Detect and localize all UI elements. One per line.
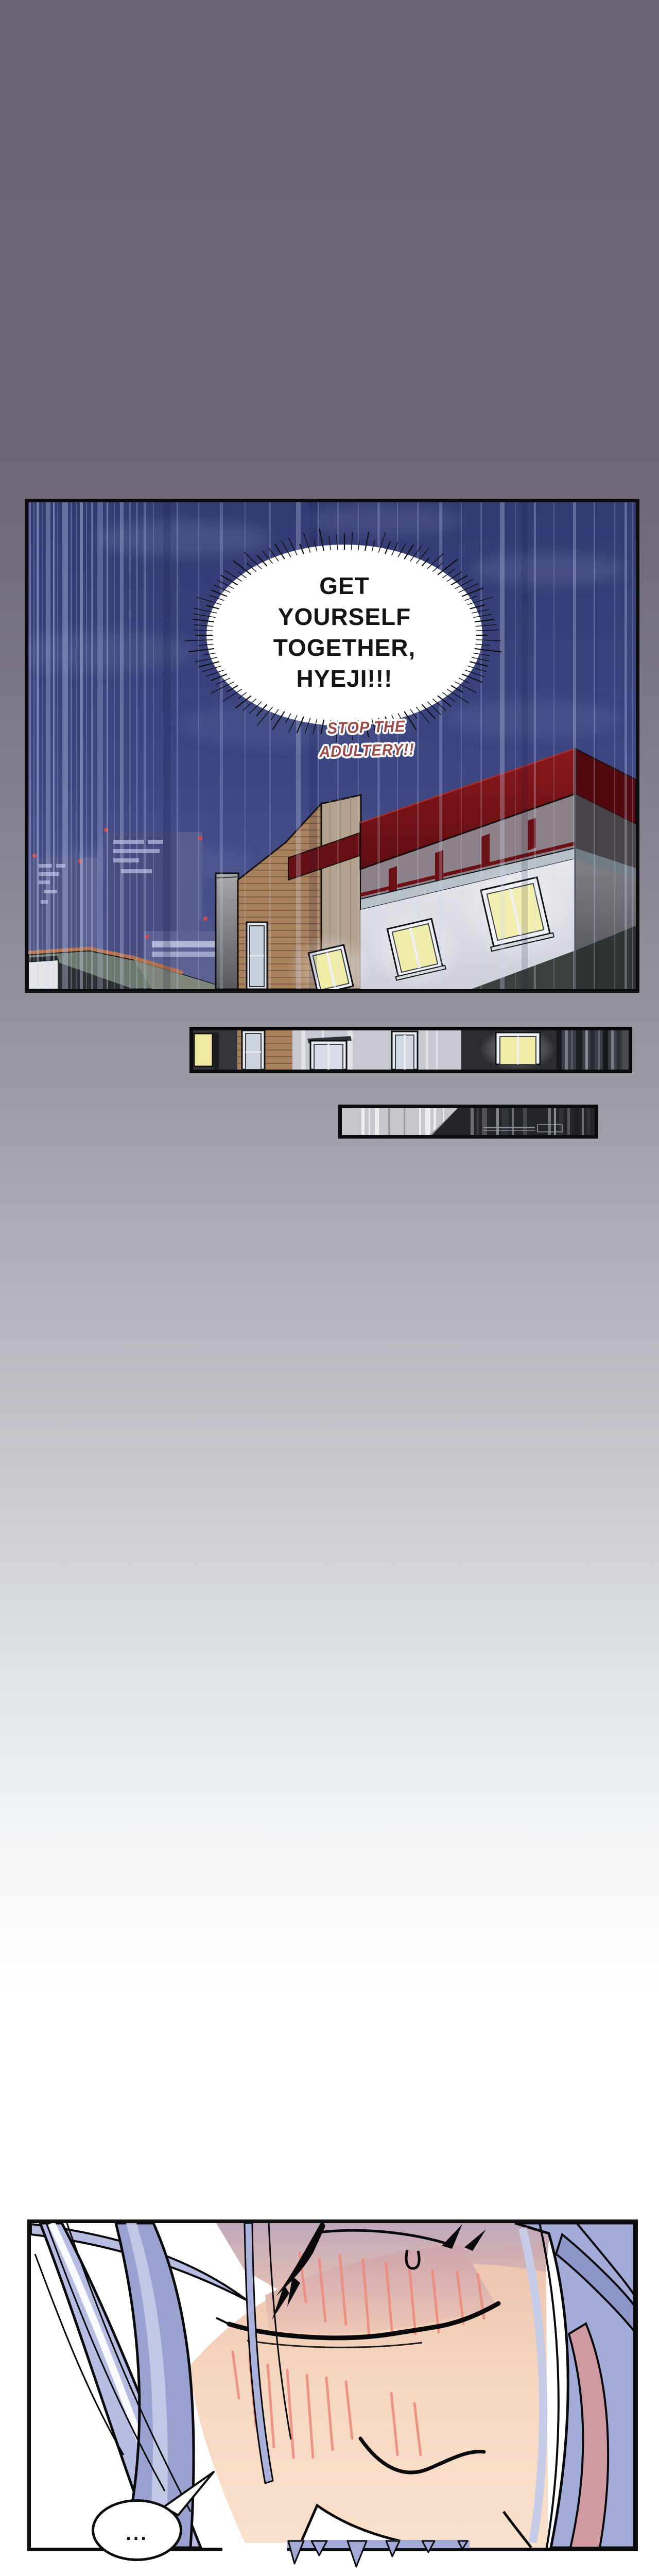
ellipsis-bubble: ...: [92, 2499, 182, 2561]
speech-bubble-text: GET YOURSELF TOGETHER, HYEJI!!!: [231, 570, 458, 694]
speech-line: HYEJI!!!: [231, 663, 458, 694]
panel-building-slice-narrow: [338, 1105, 598, 1139]
speech-line: GET: [231, 570, 458, 601]
panel-building-slice-wide: [189, 1027, 632, 1073]
speech-line: YOURSELF: [231, 601, 458, 632]
chimney-column: [216, 873, 238, 989]
slice-wide-art: [193, 1030, 629, 1070]
stripe-cluster: [557, 1030, 629, 1070]
panel-edge-hair-fringe: [216, 2540, 505, 2572]
ellipsis-text: ...: [126, 2524, 148, 2544]
panel-night-scene: GET YOURSELF TOGETHER, HYEJI!!! STOP THE…: [25, 499, 639, 993]
face-art: [31, 2223, 634, 2548]
comic-page: GET YOURSELF TOGETHER, HYEJI!!! STOP THE…: [0, 0, 659, 2576]
shout-text: STOP THE ADULTERY!!: [259, 713, 474, 765]
slice-narrow-art: [342, 1108, 595, 1135]
speech-line: TOGETHER,: [231, 632, 458, 663]
